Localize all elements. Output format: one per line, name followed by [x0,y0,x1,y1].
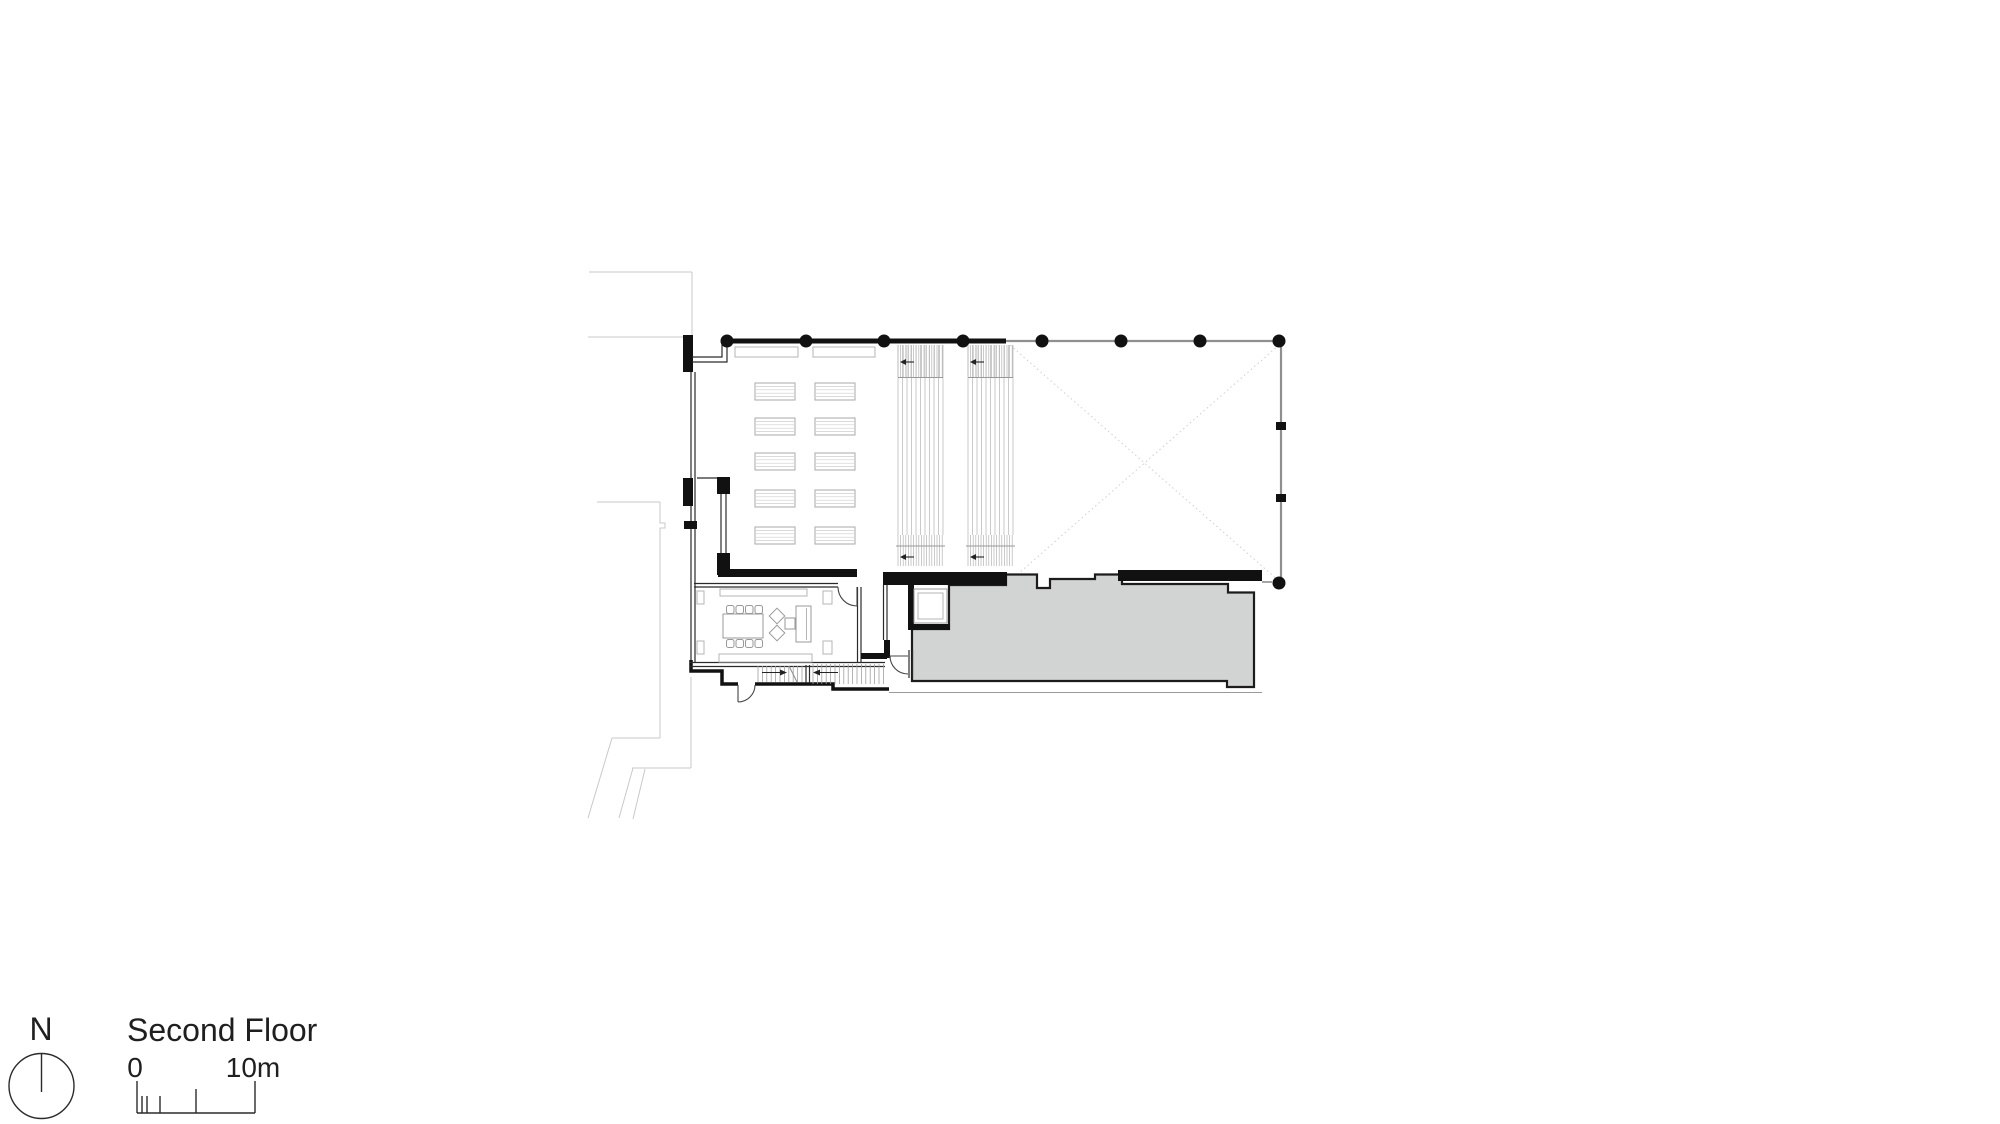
studio-desks [755,383,855,544]
floor-title: Second Floor [127,1012,318,1048]
terrace-parapet-wall [1118,570,1262,581]
drawing-sheet: N Second Floor 0 10m [0,0,2000,1124]
site-boundary-lines [588,272,692,819]
clerestory-windows [735,347,875,357]
double-height-void [1010,345,1279,581]
terrace-surface [912,575,1254,688]
credenza [697,589,832,662]
scale-end-label: 10m [226,1052,280,1083]
conference-table [723,614,763,638]
landing-door [890,656,908,674]
side-table [785,618,795,629]
skylight-box [908,585,950,630]
scale-bar: 0 10m [127,1052,280,1113]
floor-plan-canvas: N Second Floor 0 10m [0,0,2000,1124]
exterior-door [738,685,755,702]
north-indicator: N [9,1011,74,1119]
north-label: N [29,1011,52,1047]
studio-south-wall [718,569,857,577]
roof-terrace [889,570,1272,693]
entry-pier [683,335,693,372]
sofa [796,606,811,642]
structural-columns [721,335,1286,590]
retractable-seating-bands [896,345,1015,566]
scale-start-label: 0 [127,1052,143,1083]
legend: N Second Floor 0 10m [9,1011,318,1119]
lounge-chairs [769,608,785,641]
void-south-wall [883,572,1007,585]
meeting-room [690,584,885,667]
meeting-room-door [838,587,857,606]
